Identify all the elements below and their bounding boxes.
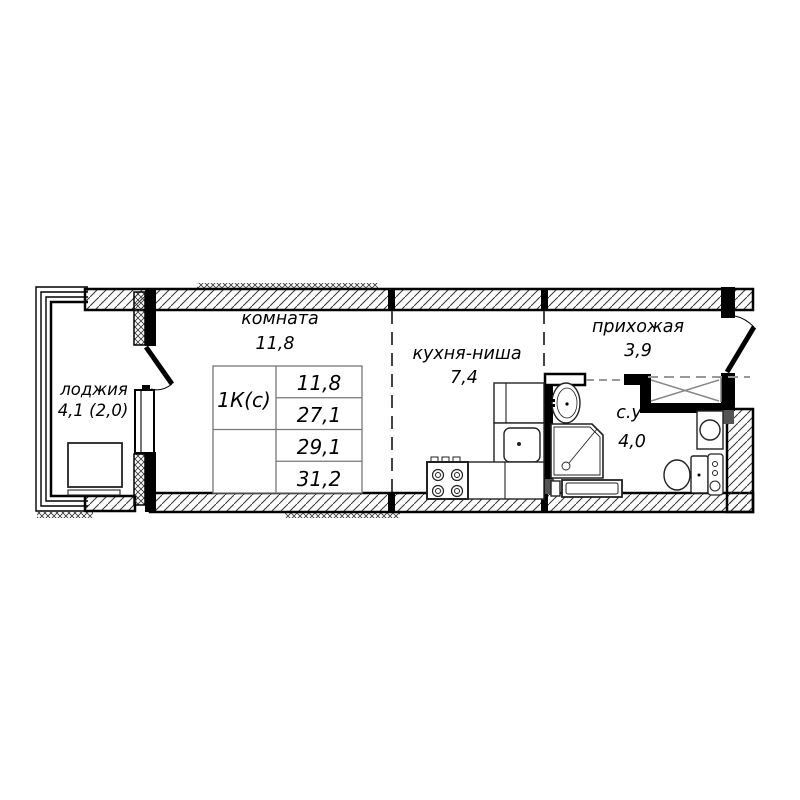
stove-icon [427,457,468,499]
bathroom-area: 4,0 [618,432,646,452]
wall-tick [541,290,548,310]
right-wall [727,409,753,512]
loggia-cabinet [68,443,122,487]
hallway-label: прихожая [592,317,684,337]
bath-bench [551,480,622,497]
pipe-riser [708,454,723,495]
kitchen-fixtures [427,383,544,499]
kitchen-sink-icon [504,428,540,462]
apartment-type-label: 1К(с) [217,388,271,412]
washing-machine-icon [697,411,723,449]
vent-shaft [722,410,734,424]
window [135,385,154,453]
loggia-bottom-wall [85,496,135,511]
entrance-door [727,316,754,372]
wall-tick [388,290,395,310]
kitchen-cabinet [494,383,544,423]
spec-table: 1К(с) 11,8 27,1 29,1 31,2 [213,366,362,493]
loggia-label: лоджия [59,380,128,399]
column [134,454,145,505]
spec-value-total: 29,1 [297,435,342,459]
spec-value-living: 11,8 [297,371,342,395]
loggia-shelf [68,490,120,495]
door-jamb [721,287,735,318]
room-label: комната [241,309,319,329]
column [134,292,145,345]
adjacent-wall-mark [37,512,93,518]
balcony-door [146,347,172,390]
wall-stub [145,452,156,512]
hallway-area: 3,9 [624,341,652,361]
spec-value-area: 27,1 [297,403,342,427]
loggia-furniture [68,443,122,495]
bathroom-label: с.у [616,403,642,423]
kitchen-area: 7,4 [450,368,478,388]
room-area: 11,8 [256,334,295,354]
wall-tick [388,494,395,511]
kitchen-label: кухня-ниша [412,344,521,364]
floor-plan-drawing: 1К(с) 11,8 27,1 29,1 31,2 комната 11,8 к… [0,0,800,800]
wall-stub [145,288,156,346]
floor-plan: 1К(с) 11,8 27,1 29,1 31,2 комната 11,8 к… [0,0,800,800]
toilet-icon [664,456,708,493]
spec-value-overall: 31,2 [297,467,342,491]
top-wall [85,289,753,310]
shower-icon [551,424,603,478]
loggia-area: 4,1 (2,0) [58,401,129,420]
